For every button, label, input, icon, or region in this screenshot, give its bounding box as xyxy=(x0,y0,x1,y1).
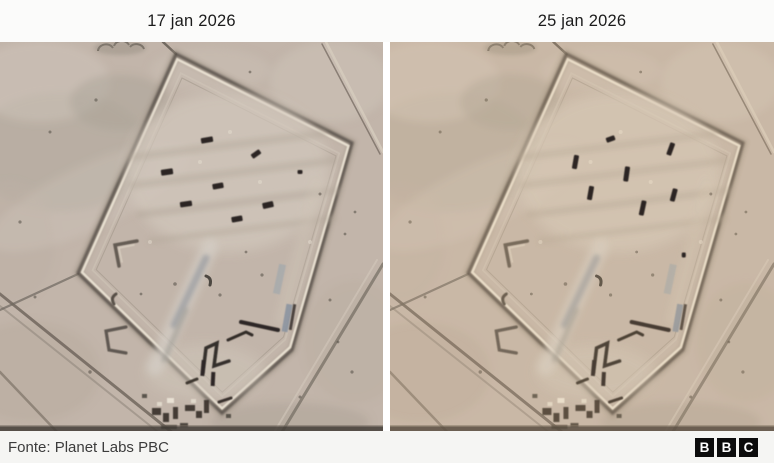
satellite-photo-left xyxy=(0,42,383,431)
panel-divider xyxy=(383,42,390,431)
satellite-image-after xyxy=(390,42,774,431)
satellite-comparison-graphic: 17 jan 2026 25 jan 2026 Fonte: Planet La… xyxy=(0,0,774,463)
bbc-logo-letter-2: B xyxy=(717,438,736,457)
source-credit: Fonte: Planet Labs PBC xyxy=(8,439,169,456)
footer: Fonte: Planet Labs PBC B B C xyxy=(0,431,774,463)
satellite-photo-right xyxy=(390,42,774,431)
bbc-logo-letter-3: C xyxy=(739,438,758,457)
date-label-left: 17 jan 2026 xyxy=(0,0,383,42)
bbc-logo-letter-1: B xyxy=(695,438,714,457)
photo-tint-left xyxy=(0,42,383,431)
bbc-logo: B B C xyxy=(695,438,758,457)
header: 17 jan 2026 25 jan 2026 xyxy=(0,0,774,42)
date-label-right: 25 jan 2026 xyxy=(390,0,774,42)
satellite-image-before xyxy=(0,42,383,431)
photo-highlight-right xyxy=(390,42,774,431)
photo-row xyxy=(0,42,774,431)
